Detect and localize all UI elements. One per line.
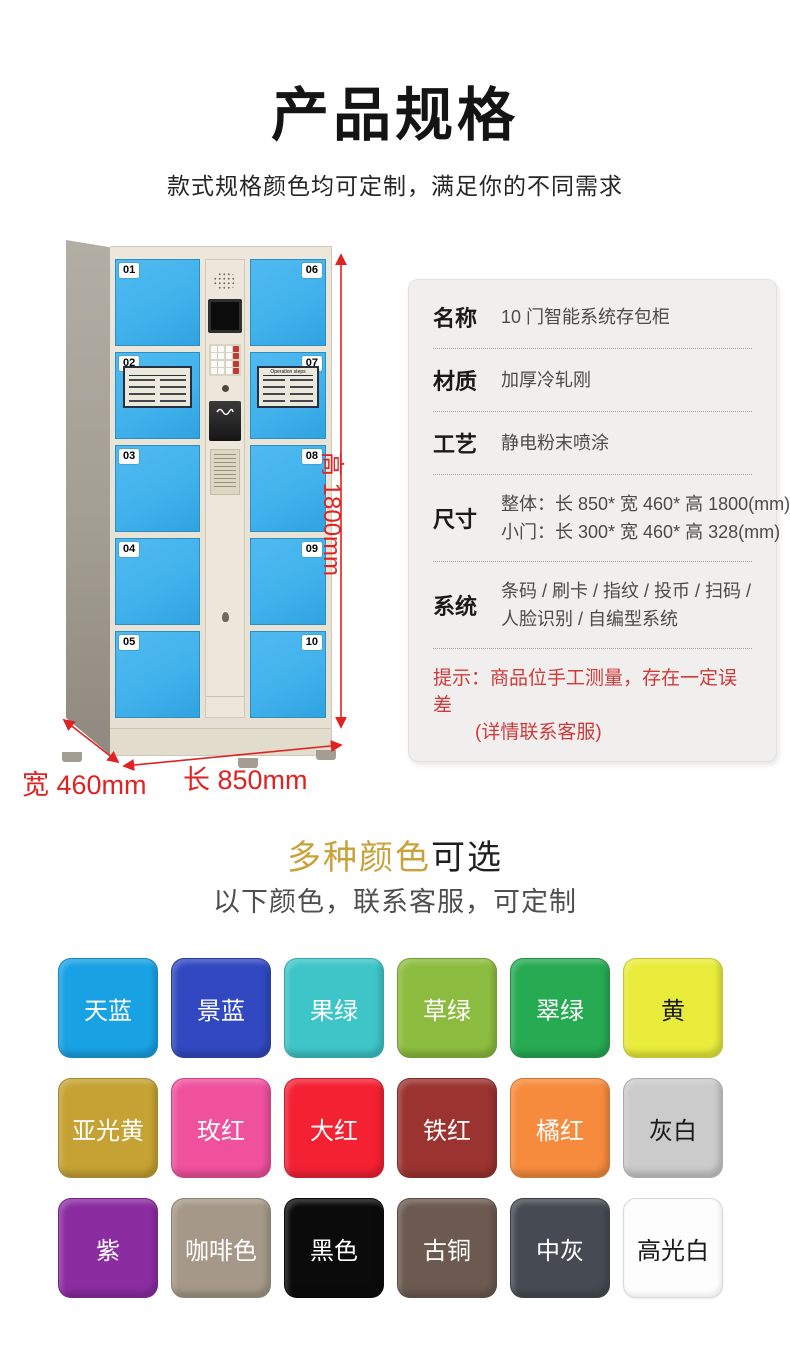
door-number: 05 xyxy=(119,635,139,650)
cabinet-foot xyxy=(316,750,336,760)
color-swatch-label: 黄 xyxy=(661,991,685,1026)
spec-rows: 名称10 门智能系统存包柜材质加厚冷轧刚工艺静电粉末喷涂尺寸整体：长 850* … xyxy=(433,286,752,649)
paper-slot-icon xyxy=(215,406,235,415)
placard-body xyxy=(263,379,313,404)
colors-heading: 多种颜色可选 xyxy=(0,830,790,879)
color-swatch-橘红: 橘红 xyxy=(510,1078,610,1178)
placard-body xyxy=(129,379,187,404)
width-dimension-label: 宽 460mm xyxy=(22,763,147,802)
color-swatch-咖啡色: 咖啡色 xyxy=(171,1198,271,1298)
divider xyxy=(206,696,244,697)
height-dimension-label: 高 1800mm xyxy=(317,452,352,576)
locker-illustration: 0102030405 0607Operation steps080910 xyxy=(0,230,400,805)
color-swatch-高光白: 高光白 xyxy=(623,1198,723,1298)
keypad-key xyxy=(218,353,224,359)
color-swatch-中灰: 中灰 xyxy=(510,1198,610,1298)
door-number: 04 xyxy=(119,542,139,557)
spec-row: 系统条码 / 刷卡 / 指纹 / 投币 / 扫码 /人脸识别 / 自编型系统 xyxy=(433,562,752,649)
color-swatch-黑色: 黑色 xyxy=(284,1198,384,1298)
color-swatch-灰白: 灰白 xyxy=(623,1078,723,1178)
cabinet-foot xyxy=(62,752,82,762)
instruction-placard: Operation steps xyxy=(257,366,319,409)
keypad-key xyxy=(226,368,232,374)
door-number: 10 xyxy=(302,635,322,650)
colors-heading-rest: 可选 xyxy=(431,839,503,877)
spec-value: 静电粉末喷涂 xyxy=(501,429,609,457)
keypad-key xyxy=(218,361,224,367)
cabinet-side-panel xyxy=(66,240,110,755)
colors-subtitle: 以下颜色，联系客服，可定制 xyxy=(0,880,790,919)
color-swatch-label: 紫 xyxy=(96,1231,120,1266)
locker-door-07: 07Operation steps xyxy=(250,352,326,439)
locker-door-10: 10 xyxy=(250,631,326,718)
door-column-left: 0102030405 xyxy=(115,259,200,724)
color-swatch-紫: 紫 xyxy=(58,1198,158,1298)
keypad-key xyxy=(211,346,217,352)
color-swatch-label: 天蓝 xyxy=(84,991,132,1026)
spec-label: 系统 xyxy=(433,589,501,621)
control-column xyxy=(205,259,245,718)
color-swatch-label: 亚光黄 xyxy=(72,1111,144,1146)
color-swatch-label: 大红 xyxy=(310,1111,358,1146)
keypad-function-key xyxy=(233,361,239,367)
display-screen xyxy=(208,299,242,333)
color-swatch-天蓝: 天蓝 xyxy=(58,958,158,1058)
keypad-key xyxy=(218,346,224,352)
keypad-function-key xyxy=(233,346,239,352)
color-swatch-果绿: 果绿 xyxy=(284,958,384,1058)
cabinet-plinth xyxy=(110,728,331,755)
keypad-function-key xyxy=(233,353,239,359)
speaker-grille-icon xyxy=(213,272,237,290)
spec-label: 工艺 xyxy=(433,427,501,459)
ticket-printer xyxy=(209,401,241,441)
keypad xyxy=(209,344,241,376)
spec-label: 名称 xyxy=(433,301,501,333)
placard-title: Operation steps xyxy=(263,369,313,376)
color-swatch-翠绿: 翠绿 xyxy=(510,958,610,1058)
color-swatch-label: 铁红 xyxy=(423,1111,471,1146)
color-swatch-草绿: 草绿 xyxy=(397,958,497,1058)
note-line-2: (详情联系客服) xyxy=(433,719,752,746)
colors-heading-highlight: 多种颜色 xyxy=(287,839,431,877)
color-swatch-大红: 大红 xyxy=(284,1078,384,1178)
color-swatch-label: 灰白 xyxy=(649,1111,697,1146)
locker-door-09: 09 xyxy=(250,538,326,625)
keypad-key xyxy=(211,368,217,374)
door-column-right: 0607Operation steps080910 xyxy=(250,259,326,724)
keypad-function-key xyxy=(233,368,239,374)
spec-row: 名称10 门智能系统存包柜 xyxy=(433,286,752,349)
spec-row: 工艺静电粉末喷涂 xyxy=(433,412,752,475)
color-swatch-黄: 黄 xyxy=(623,958,723,1058)
lock-icon xyxy=(222,385,229,392)
keypad-key xyxy=(211,353,217,359)
color-swatch-古铜: 古铜 xyxy=(397,1198,497,1298)
color-swatch-景蓝: 景蓝 xyxy=(171,958,271,1058)
locker-door-05: 05 xyxy=(115,631,200,718)
placard-title xyxy=(129,369,187,376)
length-dimension-label: 长 850mm xyxy=(183,758,308,797)
door-number: 01 xyxy=(119,263,139,278)
color-swatch-grid: 天蓝景蓝果绿草绿翠绿黄亚光黄玫红大红铁红橘红灰白紫咖啡色黑色古铜中灰高光白 xyxy=(58,958,723,1298)
locker-door-08: 08 xyxy=(250,445,326,532)
color-swatch-label: 玫红 xyxy=(197,1111,245,1146)
color-swatch-label: 中灰 xyxy=(536,1231,584,1266)
cabinet-front: 0102030405 0607Operation steps080910 xyxy=(110,246,332,756)
instruction-placard xyxy=(123,366,193,409)
color-swatch-亚光黄: 亚光黄 xyxy=(58,1078,158,1178)
spec-value: 条码 / 刷卡 / 指纹 / 投币 / 扫码 /人脸识别 / 自编型系统 xyxy=(501,577,751,633)
page-subtitle: 款式规格颜色均可定制，满足你的不同需求 xyxy=(0,167,790,201)
color-swatch-label: 橘红 xyxy=(536,1111,584,1146)
color-swatch-label: 黑色 xyxy=(310,1231,358,1266)
spec-panel: 名称10 门智能系统存包柜材质加厚冷轧刚工艺静电粉末喷涂尺寸整体：长 850* … xyxy=(408,279,777,762)
color-swatch-label: 翠绿 xyxy=(536,991,584,1026)
locker-door-04: 04 xyxy=(115,538,200,625)
color-swatch-label: 咖啡色 xyxy=(185,1231,257,1266)
door-number: 06 xyxy=(302,263,322,278)
note-line-1: 提示：商品位手工测量，存在一定误差 xyxy=(433,665,752,719)
product-spec-page: 产品规格 款式规格颜色均可定制，满足你的不同需求 0102030405 0607… xyxy=(0,0,790,1348)
color-swatch-label: 景蓝 xyxy=(197,991,245,1026)
color-swatch-label: 草绿 xyxy=(423,991,471,1026)
spec-row: 材质加厚冷轧刚 xyxy=(433,349,752,412)
locker-door-01: 01 xyxy=(115,259,200,346)
info-sticker xyxy=(210,449,240,495)
locker-door-03: 03 xyxy=(115,445,200,532)
spec-row: 尺寸整体：长 850* 宽 460* 高 1800(mm)小门：长 300* 宽… xyxy=(433,475,752,562)
spec-value: 10 门智能系统存包柜 xyxy=(501,303,670,331)
door-number: 03 xyxy=(119,449,139,464)
keyhole-icon xyxy=(222,612,229,622)
keypad-key xyxy=(211,361,217,367)
spec-label: 尺寸 xyxy=(433,502,501,534)
color-swatch-label: 高光白 xyxy=(637,1231,709,1266)
color-swatch-玫红: 玫红 xyxy=(171,1078,271,1178)
spec-label: 材质 xyxy=(433,364,501,396)
spec-note: 提示：商品位手工测量，存在一定误差 (详情联系客服) xyxy=(433,649,752,746)
spec-value: 整体：长 850* 宽 460* 高 1800(mm)小门：长 300* 宽 4… xyxy=(501,490,790,546)
spec-value: 加厚冷轧刚 xyxy=(501,366,591,394)
locker-door-06: 06 xyxy=(250,259,326,346)
color-swatch-label: 古铜 xyxy=(423,1231,471,1266)
keypad-key xyxy=(226,353,232,359)
keypad-key xyxy=(218,368,224,374)
locker-door-02: 02 xyxy=(115,352,200,439)
color-swatch-label: 果绿 xyxy=(310,991,358,1026)
color-swatch-铁红: 铁红 xyxy=(397,1078,497,1178)
keypad-key xyxy=(226,346,232,352)
page-title: 产品规格 xyxy=(0,68,790,152)
keypad-key xyxy=(226,361,232,367)
